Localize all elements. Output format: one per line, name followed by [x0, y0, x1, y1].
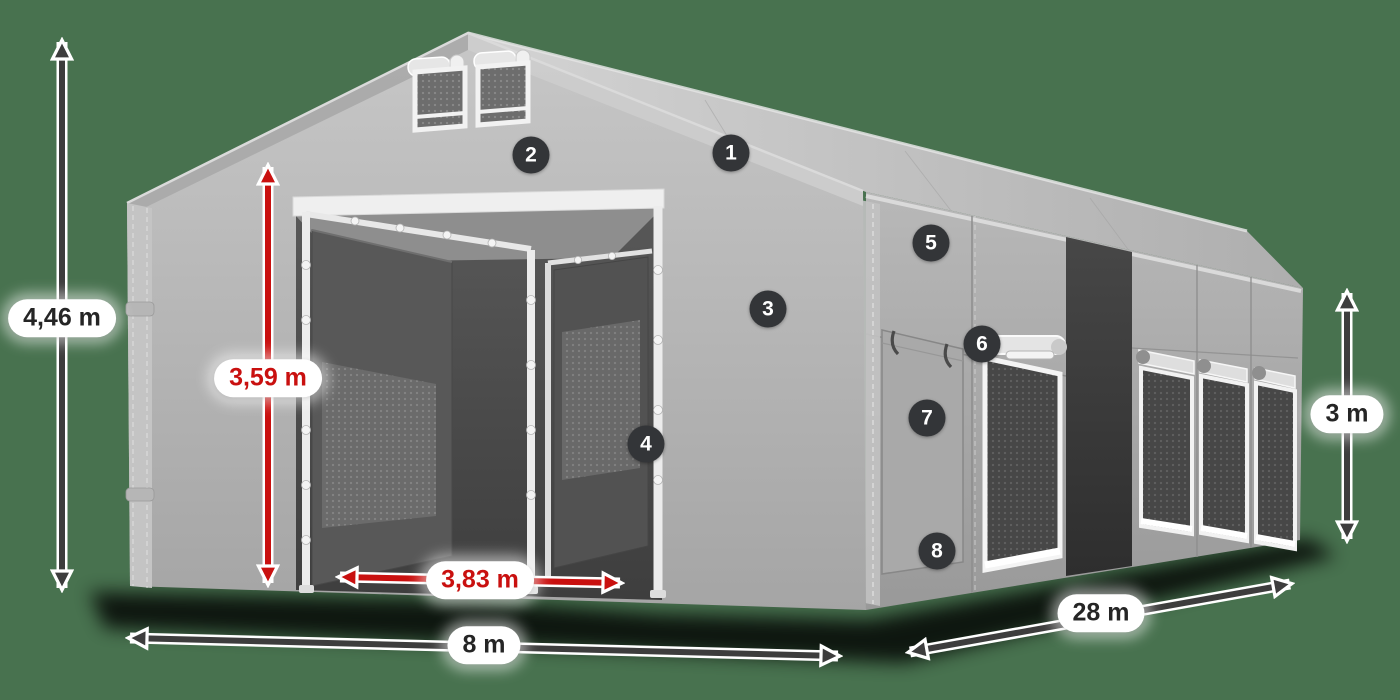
callout-badge-2[interactable]: 2 [513, 137, 550, 174]
side-open-passage [1066, 237, 1132, 576]
front-entrance [293, 189, 666, 600]
callout-badge-8[interactable]: 8 [919, 533, 956, 570]
callout-badge-3[interactable]: 3 [750, 291, 787, 328]
dimension-label-side-length: 28 m [1058, 594, 1145, 632]
tent-illustration [0, 0, 1400, 700]
dimension-label-entrance-height: 3,59 m [214, 359, 322, 397]
dimension-label-overall-height: 4,46 m [8, 299, 116, 337]
dimension-label-front-width: 8 m [447, 626, 520, 664]
callout-badge-5[interactable]: 5 [913, 225, 950, 262]
dimension-label-entrance-width: 3,83 m [426, 561, 534, 599]
entrance-door-right [554, 257, 648, 568]
callout-badge-7[interactable]: 7 [909, 400, 946, 437]
callout-badge-4[interactable]: 4 [628, 426, 665, 463]
window-roller-handle [1006, 351, 1054, 359]
entrance-door-left [312, 230, 452, 586]
side-window [983, 336, 1067, 570]
dimension-label-side-wall-height: 3 m [1310, 395, 1383, 433]
callout-badge-1[interactable]: 1 [713, 135, 750, 172]
tent-dimensions-diagram: 4,46 m 3,59 m 3,83 m 8 m 28 m 3 m 1 2 3 … [0, 0, 1400, 700]
mesh-windows [1136, 350, 1295, 549]
callout-badge-6[interactable]: 6 [964, 326, 1001, 363]
